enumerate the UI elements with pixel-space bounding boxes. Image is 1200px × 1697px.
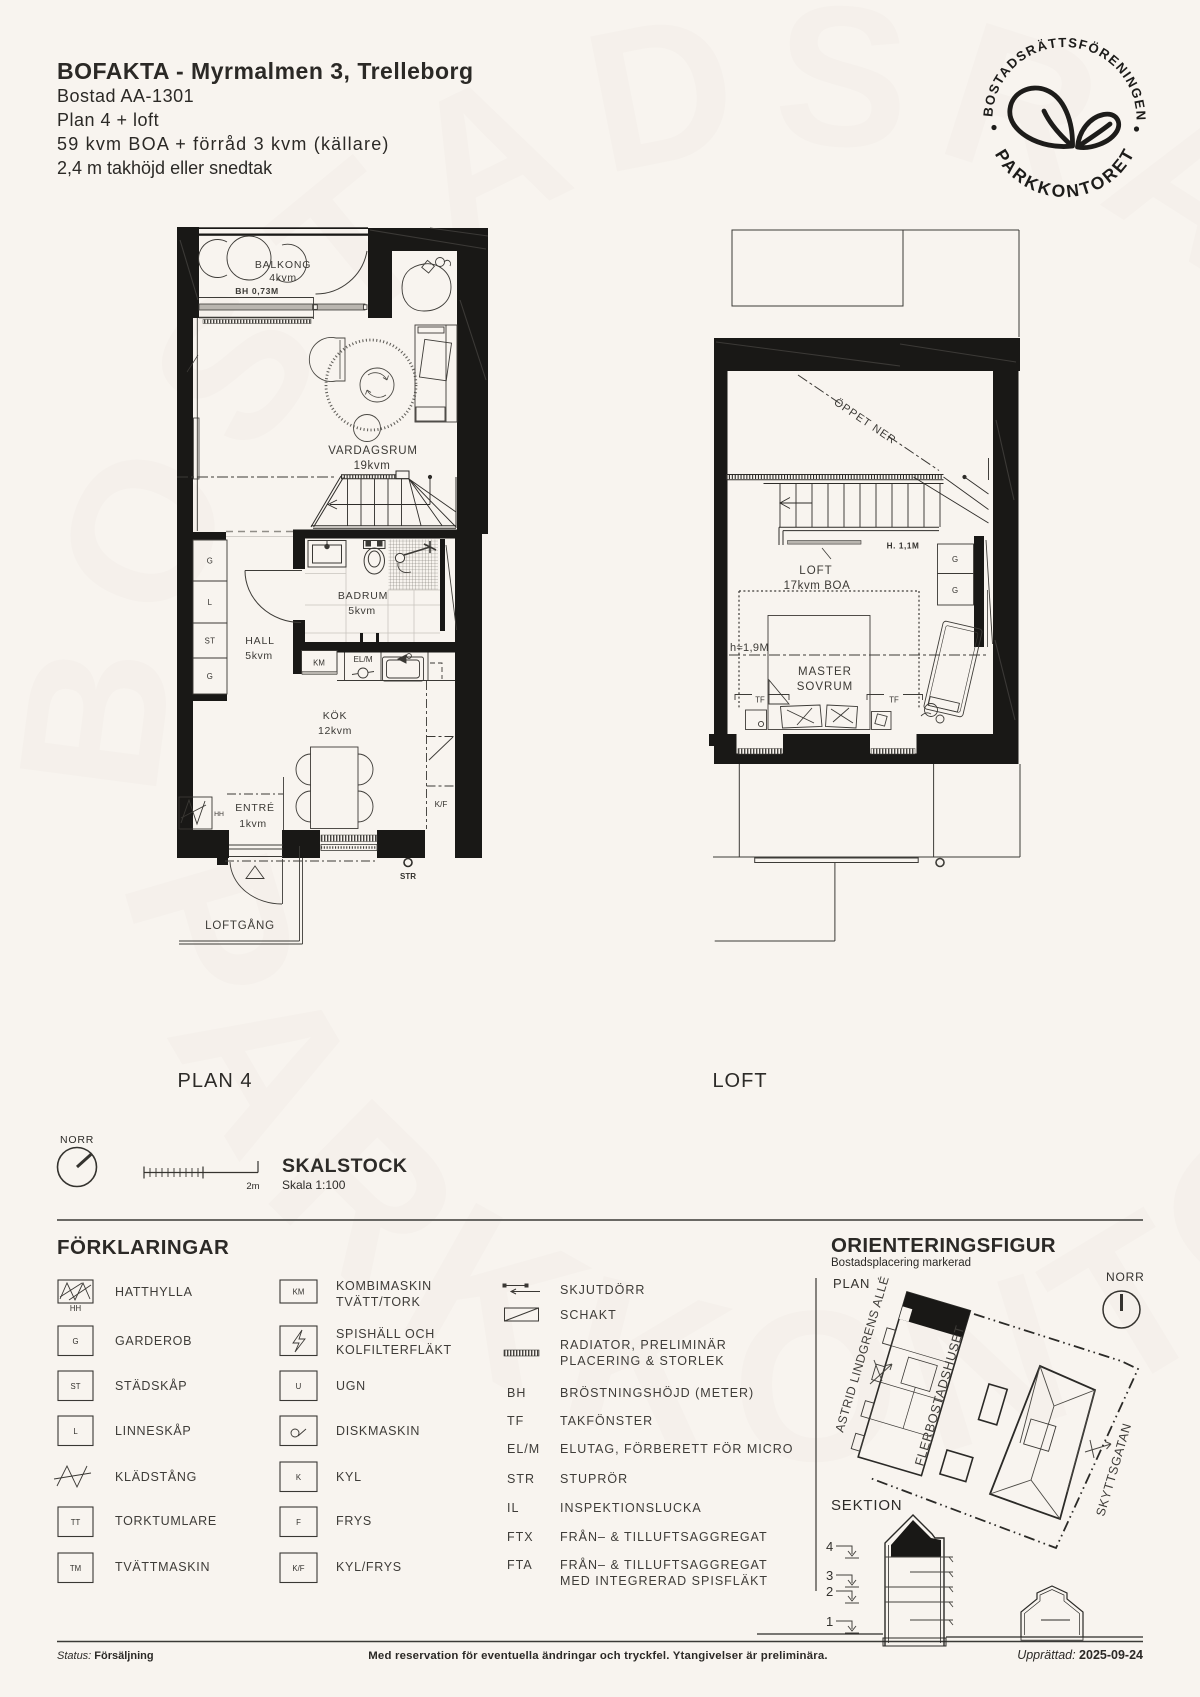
svg-text:HATTHYLLA: HATTHYLLA (115, 1285, 193, 1299)
svg-text:KM: KM (313, 659, 325, 668)
svg-text:FRÅN– & TILLUFTSAGGREGAT: FRÅN– & TILLUFTSAGGREGAT (560, 1529, 768, 1544)
svg-text:Med reservation för eventuella: Med reservation för eventuella ändringar… (368, 1650, 828, 1662)
svg-text:BH 0,73M: BH 0,73M (235, 286, 279, 296)
svg-text:UGN: UGN (336, 1379, 366, 1393)
svg-text:STR: STR (507, 1472, 535, 1486)
svg-text:ST: ST (71, 1382, 81, 1391)
svg-text:ST: ST (205, 637, 216, 646)
svg-text:HALL: HALL (245, 635, 274, 647)
svg-text:PLAN: PLAN (833, 1276, 870, 1291)
svg-text:KYL/FRYS: KYL/FRYS (336, 1560, 402, 1574)
svg-text:SKALSTOCK: SKALSTOCK (282, 1155, 407, 1177)
svg-text:BADRUM: BADRUM (338, 590, 388, 602)
svg-text:TM: TM (70, 1564, 81, 1573)
svg-text:Bostadsplacering markerad: Bostadsplacering markerad (831, 1257, 971, 1269)
svg-text:SOVRUM: SOVRUM (797, 681, 853, 693)
svg-text:K/F: K/F (435, 800, 448, 809)
svg-text:BOFAKTA - Myrmalmen 3, Trelleb: BOFAKTA - Myrmalmen 3, Trelleborg (57, 58, 474, 84)
svg-text:G: G (952, 555, 958, 564)
svg-text:H. 1,1M: H. 1,1M (887, 542, 920, 551)
svg-text:TAKFÖNSTER: TAKFÖNSTER (560, 1414, 653, 1428)
svg-text:2,4 m takhöjd eller snedtak: 2,4 m takhöjd eller snedtak (57, 158, 273, 178)
svg-text:KÖK: KÖK (323, 710, 348, 722)
svg-text:Bostad AA-1301: Bostad AA-1301 (57, 86, 194, 106)
svg-text:PLACERING & STORLEK: PLACERING & STORLEK (560, 1354, 725, 1368)
svg-text:G: G (207, 557, 213, 566)
svg-text:STÄDSKÅP: STÄDSKÅP (115, 1378, 187, 1393)
svg-text:3: 3 (826, 1568, 833, 1583)
svg-text:L: L (208, 598, 213, 607)
svg-text:EL/M: EL/M (353, 655, 372, 664)
svg-text:MASTER: MASTER (798, 666, 852, 678)
svg-text:BH: BH (507, 1386, 526, 1400)
svg-text:FRYS: FRYS (336, 1514, 372, 1528)
svg-text:G: G (72, 1337, 78, 1346)
svg-text:HH: HH (214, 811, 224, 818)
svg-text:17kvm BOA: 17kvm BOA (784, 580, 851, 592)
svg-text:TVÄTTMASKIN: TVÄTTMASKIN (115, 1560, 210, 1574)
svg-text:MED INTEGRERAD SPISFLÄKT: MED INTEGRERAD SPISFLÄKT (560, 1574, 768, 1588)
svg-text:BRÖSTNINGSHÖJD (METER): BRÖSTNINGSHÖJD (METER) (560, 1386, 754, 1400)
svg-text:1: 1 (826, 1614, 833, 1629)
svg-text:ELUTAG, FÖRBERETT FÖR MICRO: ELUTAG, FÖRBERETT FÖR MICRO (560, 1442, 794, 1456)
svg-text:59 kvm BOA + förråd 3 kvm (käl: 59 kvm BOA + förråd 3 kvm (källare) (57, 134, 390, 154)
svg-text:INSPEKTIONSLUCKA: INSPEKTIONSLUCKA (560, 1501, 702, 1515)
svg-text:Plan 4 + loft: Plan 4 + loft (57, 110, 159, 130)
svg-text:4kvm: 4kvm (269, 272, 297, 284)
svg-text:5kvm: 5kvm (348, 605, 376, 617)
svg-text:L: L (73, 1427, 78, 1436)
svg-text:ENTRÉ: ENTRÉ (235, 801, 275, 814)
svg-text:F: F (296, 1518, 301, 1527)
svg-text:TVÄTT/TORK: TVÄTT/TORK (336, 1295, 421, 1309)
svg-text:2m: 2m (246, 1181, 259, 1192)
svg-text:Skala 1:100: Skala 1:100 (282, 1178, 346, 1192)
svg-text:1kvm: 1kvm (239, 818, 267, 830)
svg-text:5kvm: 5kvm (245, 650, 273, 662)
svg-text:SCHAKT: SCHAKT (560, 1308, 617, 1322)
svg-text:TT: TT (71, 1518, 81, 1527)
svg-text:h≈1,9M: h≈1,9M (730, 642, 769, 654)
svg-text:LINNESKÅP: LINNESKÅP (115, 1423, 191, 1438)
svg-text:19kvm: 19kvm (354, 460, 391, 472)
svg-text:FÖRKLARINGAR: FÖRKLARINGAR (57, 1236, 229, 1259)
svg-text:TF: TF (755, 696, 765, 705)
svg-text:FTX: FTX (507, 1530, 534, 1544)
svg-text:ORIENTERINGSFIGUR: ORIENTERINGSFIGUR (831, 1234, 1056, 1257)
svg-text:Status: Försäljning: Status: Försäljning (57, 1650, 154, 1662)
svg-text:TF: TF (889, 696, 899, 705)
svg-text:K/F: K/F (292, 1564, 304, 1573)
svg-text:K: K (296, 1473, 302, 1482)
svg-text:12kvm: 12kvm (318, 725, 352, 737)
svg-text:KYL: KYL (336, 1470, 362, 1484)
svg-text:U: U (296, 1382, 302, 1391)
svg-text:G: G (207, 672, 213, 681)
svg-text:NORR: NORR (1106, 1270, 1145, 1284)
svg-text:KOMBIMASKIN: KOMBIMASKIN (336, 1279, 432, 1293)
svg-text:G: G (952, 586, 958, 595)
svg-text:TORKTUMLARE: TORKTUMLARE (115, 1514, 217, 1528)
svg-text:LOFTGÅNG: LOFTGÅNG (205, 919, 275, 932)
svg-text:STR: STR (400, 872, 416, 881)
svg-text:SPISHÄLL OCH: SPISHÄLL OCH (336, 1327, 435, 1341)
svg-text:EL/M: EL/M (507, 1442, 540, 1456)
svg-text:IL: IL (507, 1501, 519, 1515)
svg-text:LOFT: LOFT (712, 1070, 767, 1092)
svg-text:2: 2 (826, 1584, 833, 1599)
svg-text:KLÄDSTÅNG: KLÄDSTÅNG (115, 1469, 197, 1484)
svg-text:VARDAGSRUM: VARDAGSRUM (328, 445, 418, 457)
svg-text:TF: TF (507, 1414, 524, 1428)
svg-text:RADIATOR, PRELIMINÄR: RADIATOR, PRELIMINÄR (560, 1338, 727, 1352)
svg-text:FRÅN– & TILLUFTSAGGREGAT: FRÅN– & TILLUFTSAGGREGAT (560, 1557, 768, 1572)
svg-text:KOLFILTERFLÄKT: KOLFILTERFLÄKT (336, 1343, 452, 1357)
svg-text:NORR: NORR (60, 1134, 94, 1146)
svg-text:STUPRÖR: STUPRÖR (560, 1472, 628, 1486)
svg-text:Upprättad: 2025-09-24: Upprättad: 2025-09-24 (1017, 1648, 1143, 1662)
svg-text:GARDEROB: GARDEROB (115, 1334, 192, 1348)
svg-text:4: 4 (826, 1539, 833, 1554)
svg-text:FTA: FTA (507, 1558, 533, 1572)
svg-text:DISKMASKIN: DISKMASKIN (336, 1424, 420, 1438)
svg-text:SEKTION: SEKTION (831, 1497, 902, 1514)
svg-text:SKJUTDÖRR: SKJUTDÖRR (560, 1283, 645, 1297)
svg-text:HH: HH (70, 1304, 81, 1313)
svg-text:PLAN 4: PLAN 4 (178, 1070, 253, 1092)
svg-text:LOFT: LOFT (799, 565, 832, 577)
svg-text:BALKONG: BALKONG (255, 259, 311, 271)
svg-text:KM: KM (293, 1288, 305, 1297)
